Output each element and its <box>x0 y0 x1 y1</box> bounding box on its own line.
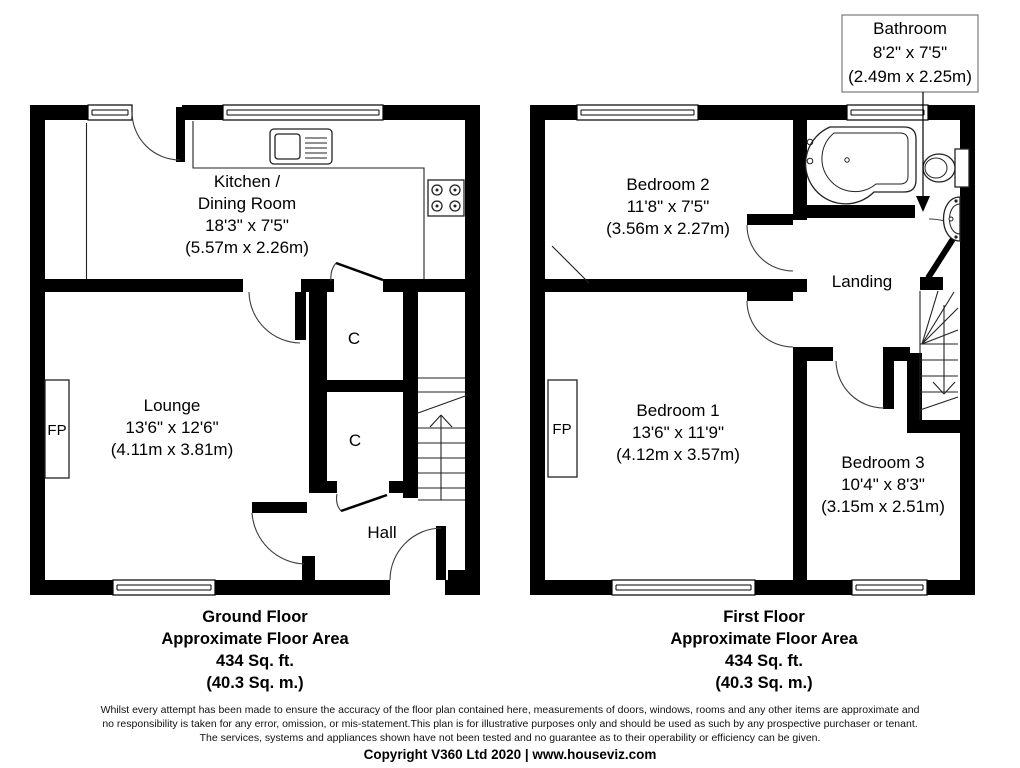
bedroom3-door <box>836 361 894 409</box>
bedroom3-label: Bedroom 3 10'4" x 8'3" (3.15m x 2.51m) <box>821 452 945 518</box>
stairs-up <box>418 378 468 500</box>
sink-fixture <box>270 129 332 164</box>
window <box>88 105 132 120</box>
fireplace-first-label: FP <box>552 419 571 441</box>
bedroom2-corner-line <box>552 246 589 283</box>
hob-fixture <box>428 180 464 216</box>
stairs-down <box>920 291 958 420</box>
fireplace-ground-label: FP <box>47 420 66 442</box>
window <box>113 580 215 595</box>
window <box>223 105 383 120</box>
bathroom-callout-label: Bathroom 8'2" x 7'5" (2.49m x 2.25m) <box>848 17 972 89</box>
floorplan-canvas: Kitchen / Dining Room 18'3" x 7'5" (5.57… <box>0 0 1020 768</box>
bedroom2-label: Bedroom 2 11'8" x 7'5" (3.56m x 2.27m) <box>606 174 730 240</box>
bathtub-fixture <box>806 127 916 204</box>
window <box>612 580 755 595</box>
floorplan-graphics <box>0 0 1020 768</box>
window <box>852 580 927 595</box>
kitchen-label: Kitchen / Dining Room 18'3" x 7'5" (5.57… <box>185 171 309 259</box>
hall-label: Hall <box>367 522 396 544</box>
lounge-label: Lounge 13'6" x 12'6" (4.11m x 3.81m) <box>111 395 234 461</box>
copyright-text: Copyright V360 Ltd 2020 | www.houseviz.c… <box>364 744 657 766</box>
bedroom1-door <box>747 290 793 347</box>
cupboard-bottom-label: C <box>349 430 361 452</box>
arrow-down-icon <box>916 196 930 212</box>
first-floor-area-summary: First Floor Approximate Floor Area 434 S… <box>670 606 857 694</box>
landing-label: Landing <box>832 271 893 293</box>
cupboard-bottom-door <box>337 494 388 511</box>
lounge-hall-door <box>252 502 307 564</box>
ground-floor-area-summary: Ground Floor Approximate Floor Area 434 … <box>161 606 348 694</box>
kitchen-lounge-door <box>249 292 306 343</box>
disclaimer-text: Whilst every attempt has been made to en… <box>101 703 920 745</box>
bedroom1-label: Bedroom 1 13'6" x 11'9" (4.12m x 3.57m) <box>616 400 740 466</box>
window <box>847 105 928 120</box>
back-door <box>132 107 185 162</box>
toilet-fixture <box>923 149 969 187</box>
basin-fixture <box>944 197 961 241</box>
bedroom2-door <box>747 214 793 271</box>
window <box>577 105 698 120</box>
cupboard-top-label: C <box>348 328 360 350</box>
front-door <box>390 526 446 580</box>
cupboard-top-door <box>331 263 383 281</box>
